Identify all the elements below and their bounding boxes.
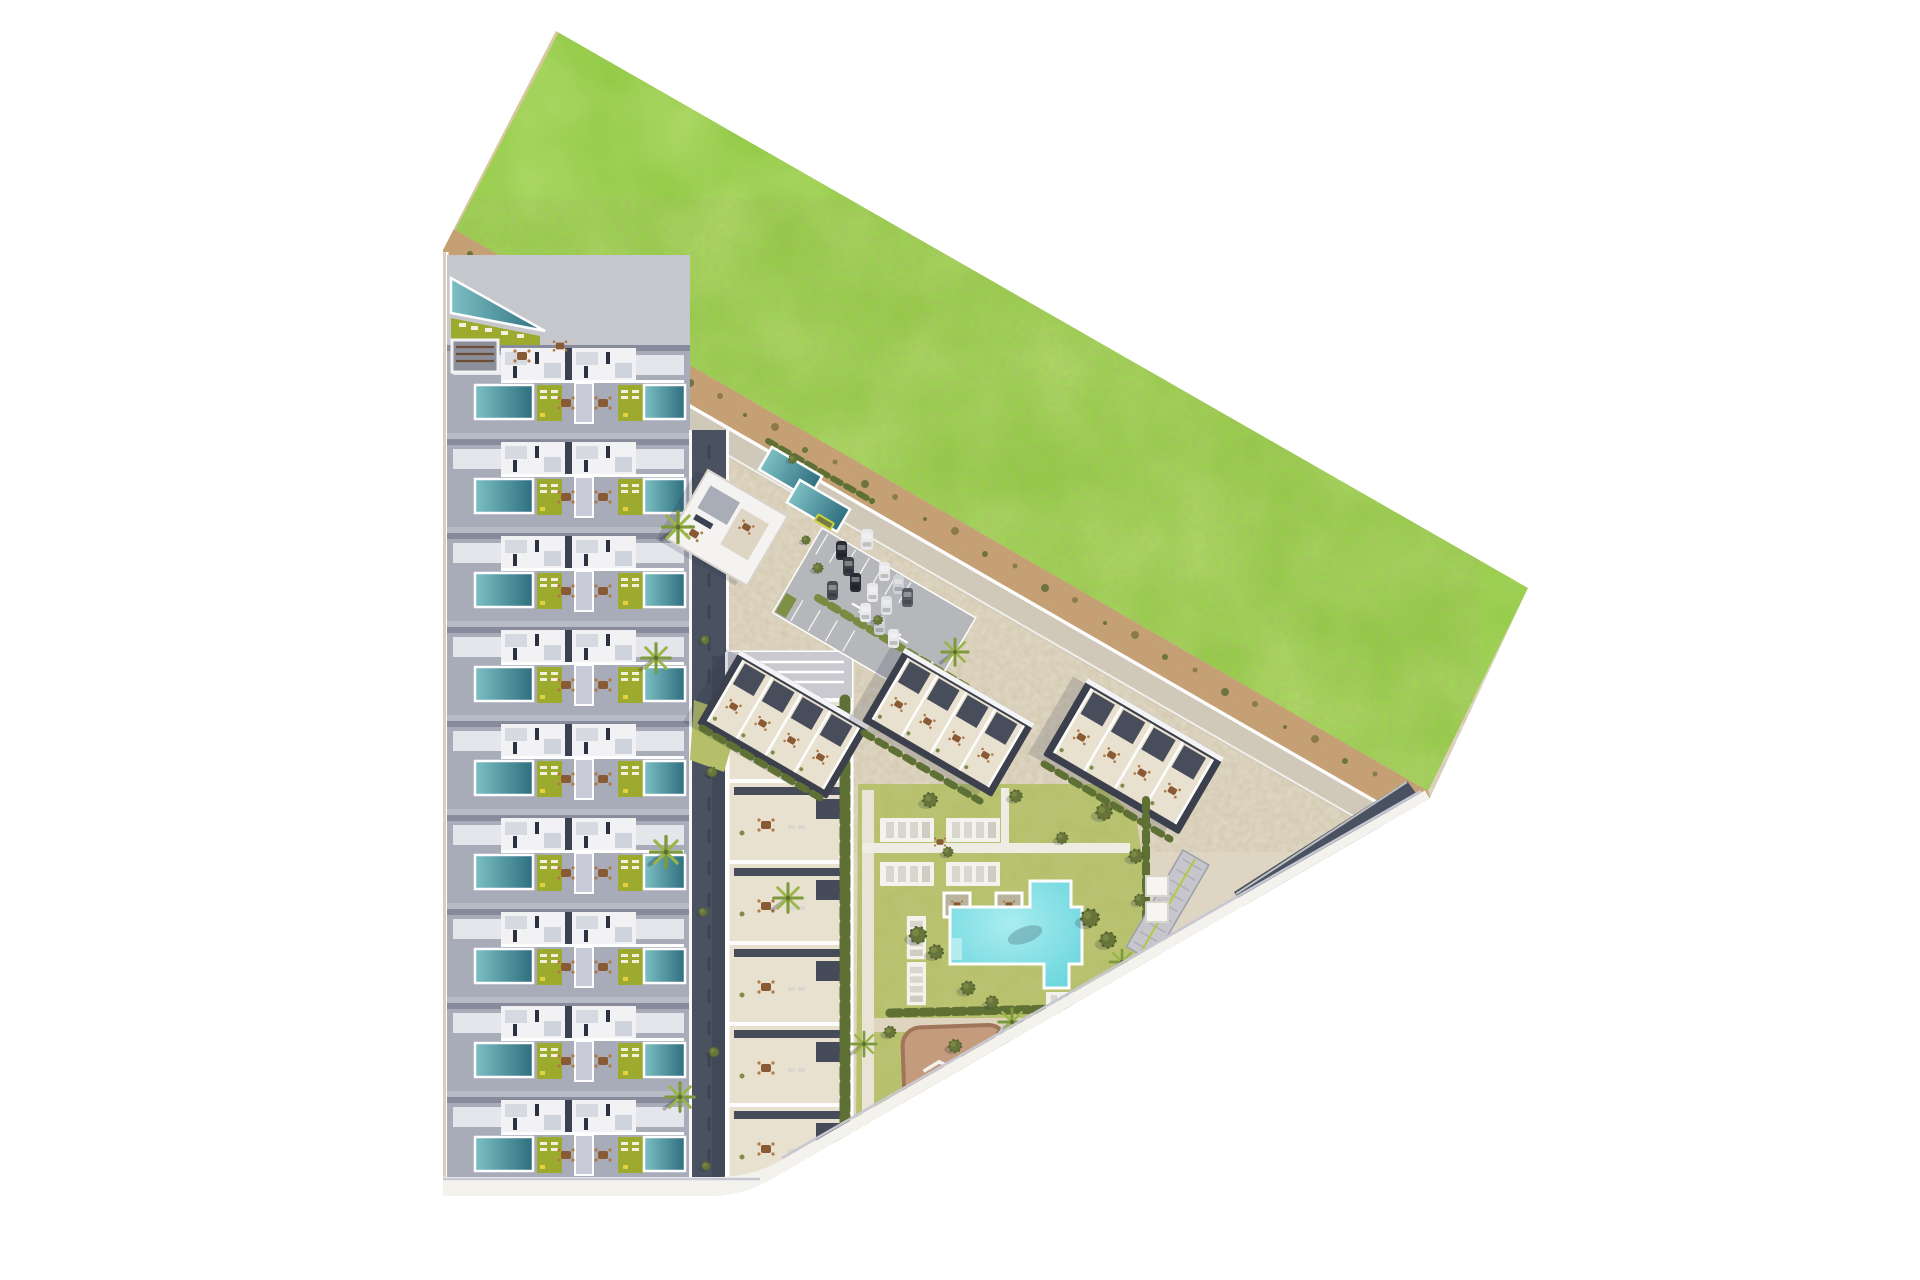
pergola xyxy=(1146,876,1168,896)
sun-deck xyxy=(880,818,934,842)
bench xyxy=(1018,1072,1027,1085)
pergola xyxy=(1146,902,1168,922)
townhouse-row xyxy=(447,1097,690,1191)
site-plan-stage xyxy=(0,0,1920,1280)
pergola xyxy=(452,340,498,372)
townhouse-row xyxy=(447,533,690,627)
pool-house xyxy=(1152,966,1176,988)
sun-deck xyxy=(946,818,1000,842)
sun-deck xyxy=(946,862,1000,886)
townhouse-row xyxy=(447,627,690,721)
townhouse-row xyxy=(447,909,690,1003)
townhouse-row xyxy=(447,721,690,815)
townhouse-strip xyxy=(447,255,690,1191)
townhouse-row xyxy=(447,439,690,533)
site-plan xyxy=(0,0,1920,1280)
sun-deck xyxy=(880,862,934,886)
pool-steps xyxy=(952,938,962,960)
bench xyxy=(1014,1038,1023,1051)
townhouse-row xyxy=(447,1003,690,1097)
sidewalk xyxy=(431,252,449,1196)
sun-deck xyxy=(907,962,926,1005)
